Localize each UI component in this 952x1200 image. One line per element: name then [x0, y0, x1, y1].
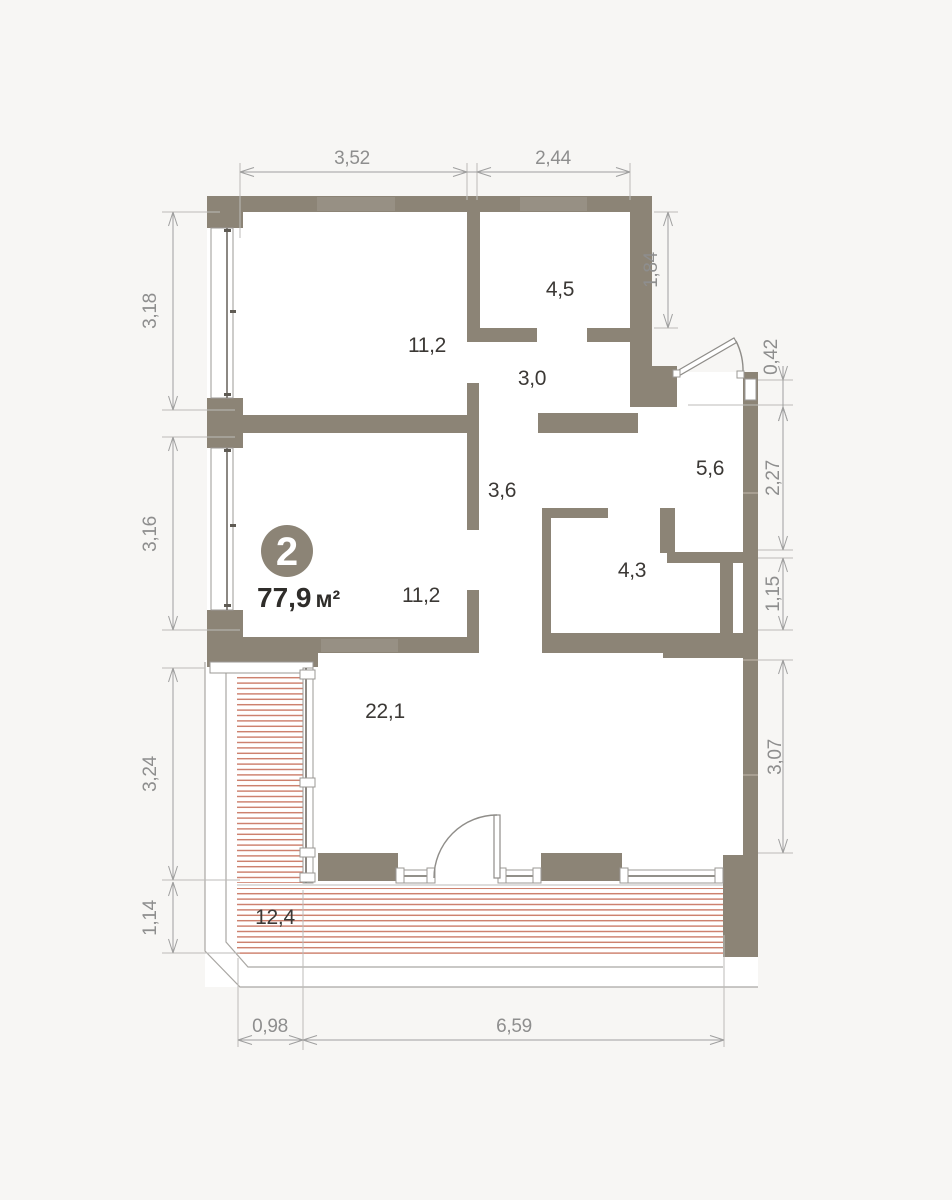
right-wall-niche	[745, 379, 756, 400]
floor-plan-page: 3,52 2,44 3,18 3,16 3,24 1,14 1,84 0,42 …	[0, 0, 952, 1200]
unit-area-label: 77,9м²	[257, 582, 341, 613]
dim-left-2: 3,16	[140, 516, 161, 552]
dim-right-2: 0,42	[761, 339, 782, 375]
dim-right-4: 1,15	[763, 576, 784, 612]
room-area-label-room-middle: 11,2	[402, 584, 440, 607]
room-area-label-corridor: 3,6	[488, 479, 516, 502]
unit-number: 2	[276, 530, 298, 574]
dim-left-3: 3,24	[140, 755, 161, 792]
room-area-label-room-top: 11,2	[408, 334, 446, 357]
bottom-window-right	[620, 868, 723, 883]
room-area-label-entry-hall: 5,6	[696, 457, 724, 480]
room-area-label-bathroom: 4,3	[618, 559, 646, 582]
dim-top-1: 3,52	[334, 148, 370, 169]
dim-right-3: 2,27	[763, 460, 784, 496]
bottom-window-middle	[498, 868, 541, 883]
dim-bottom-2: 6,59	[496, 1016, 532, 1037]
left-window-lower	[211, 448, 236, 610]
bottom-window-left	[396, 868, 435, 883]
dim-bottom-1: 0,98	[252, 1016, 288, 1037]
room-area-label-wardrobe: 4,5	[546, 278, 574, 301]
dim-top-2: 2,44	[535, 148, 572, 169]
dim-left-4: 1,14	[140, 899, 161, 936]
floor-plan-drawing: 3,52 2,44 3,18 3,16 3,24 1,14 1,84 0,42 …	[0, 0, 952, 1200]
left-window-upper	[211, 228, 236, 398]
room-area-label-living-kitchen: 22,1	[365, 700, 405, 723]
room-area-label-terrace: 12,4	[255, 906, 295, 929]
dim-right-1: 1,84	[641, 251, 662, 288]
room-area-label-hallway: 3,0	[518, 367, 546, 390]
dim-right-5: 3,07	[765, 739, 786, 775]
dim-left-1: 3,18	[140, 293, 161, 329]
